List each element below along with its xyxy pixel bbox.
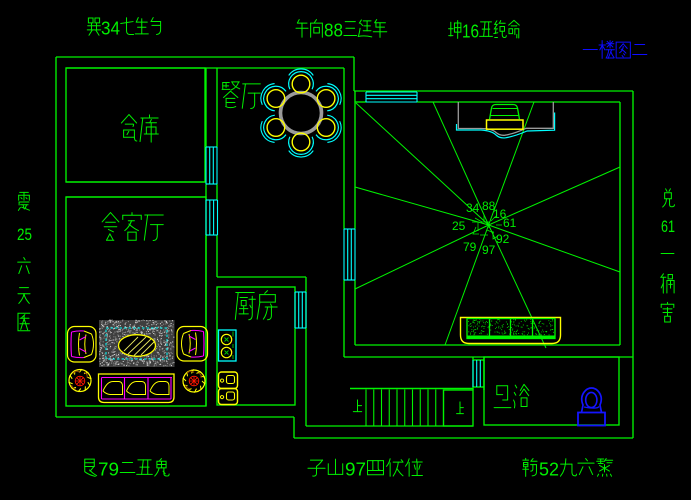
svg-text:61: 61 (503, 216, 517, 230)
svg-text:97: 97 (345, 459, 366, 480)
svg-text:88: 88 (324, 20, 343, 41)
svg-text:34: 34 (466, 201, 480, 215)
svg-text:92: 92 (496, 232, 510, 246)
svg-text:79: 79 (463, 240, 477, 254)
svg-text:16: 16 (462, 21, 479, 42)
svg-text:25: 25 (452, 219, 466, 233)
svg-text:52: 52 (539, 459, 559, 480)
svg-text:34: 34 (101, 18, 120, 39)
svg-text:97: 97 (482, 243, 496, 257)
svg-text:25: 25 (17, 225, 32, 244)
svg-text:61: 61 (661, 217, 675, 236)
svg-text:79: 79 (98, 459, 119, 480)
